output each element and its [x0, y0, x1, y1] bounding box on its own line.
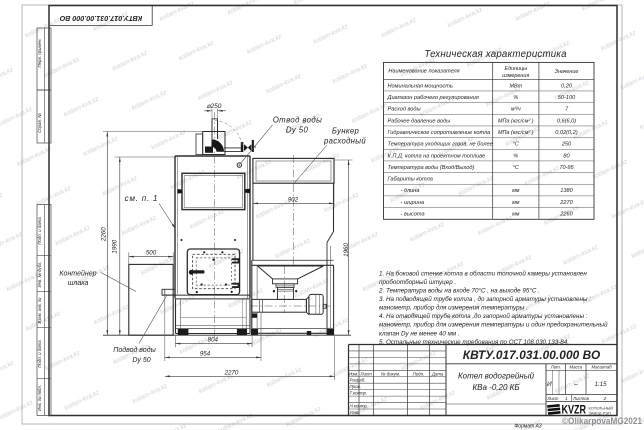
svg-text:0,6(6,0): 0,6(6,0) — [557, 118, 576, 124]
svg-text:МПа (кгс/см² ): МПа (кгс/см² ) — [498, 130, 534, 136]
svg-text:0,20: 0,20 — [561, 83, 573, 89]
svg-text:4. На отводящей трубе котла ,: 4. На отводящей трубе котла ,до запорной… — [379, 313, 588, 320]
svg-text:1380: 1380 — [560, 188, 573, 194]
svg-text:Подвод воды: Подвод воды — [113, 346, 156, 354]
svg-text:902: 902 — [288, 196, 299, 203]
svg-text:Инв. № подл.: Инв. № подл. — [37, 385, 42, 411]
svg-text:70-95: 70-95 — [559, 165, 574, 171]
svg-text:⌀250: ⌀250 — [207, 103, 222, 110]
svg-text:Масса: Масса — [569, 365, 582, 370]
svg-text:№ докум.: № докум. — [381, 371, 400, 376]
svg-text:3. На подводящей трубе котла: 3. На подводящей трубе котла , до запорн… — [379, 296, 591, 303]
svg-text:м³/ч: м³/ч — [511, 107, 521, 113]
svg-text:Листов: Листов — [572, 396, 589, 401]
svg-text:Рабочее давление воды: Рабочее давление воды — [388, 118, 451, 124]
svg-text:1:15: 1:15 — [594, 381, 607, 388]
svg-text:Подп. и дата: Подп. и дата — [37, 340, 42, 368]
svg-text:Отвод воды: Отвод воды — [273, 116, 323, 125]
svg-text:МПа (кгс/см² ): МПа (кгс/см² ) — [498, 118, 534, 124]
svg-text:°С: °С — [513, 142, 519, 148]
svg-text:- высота: - высота — [401, 212, 425, 218]
svg-text:Масштаб: Масштаб — [591, 365, 612, 370]
svg-text:Лист: Лист — [546, 396, 558, 401]
svg-text:2260: 2260 — [559, 212, 573, 218]
svg-text:%: % — [513, 153, 518, 159]
svg-text:Дата: Дата — [431, 371, 444, 376]
svg-text:Справ. №: Справ. № — [37, 113, 42, 133]
svg-text:расходный: расходный — [323, 137, 366, 146]
svg-text:Разраб.: Разраб. — [350, 378, 366, 383]
svg-text:Подп.: Подп. — [413, 371, 425, 376]
svg-text:Температура воды (Вход/Выход): Температура воды (Вход/Выход) — [388, 165, 475, 171]
svg-text:Лист: Лист — [360, 371, 373, 376]
svg-text:–: – — [573, 381, 578, 388]
svg-text:Расход воды: Расход воды — [388, 107, 421, 113]
svg-text:Контейнер: Контейнер — [59, 270, 96, 278]
svg-text:мм: мм — [512, 200, 520, 206]
svg-text:МВт: МВт — [510, 83, 523, 89]
svg-text:манометр, прибор для измерения: манометр, прибор для измерения температу… — [379, 322, 608, 329]
svg-text:мм: мм — [512, 212, 520, 218]
svg-text:°С: °С — [513, 165, 519, 171]
svg-text:500: 500 — [146, 250, 157, 257]
svg-text:804: 804 — [208, 337, 219, 344]
svg-text:2260: 2260 — [100, 227, 107, 242]
svg-text:И: И — [547, 381, 552, 388]
svg-text:Формат А3: Формат А3 — [514, 424, 542, 430]
svg-text:Утв.: Утв. — [350, 410, 360, 415]
svg-text:2270: 2270 — [224, 369, 239, 376]
svg-text:80: 80 — [563, 153, 570, 159]
svg-text:Н.контр.: Н.контр. — [350, 403, 369, 408]
svg-text:2. Температура воды на входе: 2. Температура воды на входе 70°С , на в… — [378, 288, 540, 295]
svg-text:Наименование показателя: Наименование показателя — [388, 69, 459, 75]
svg-text:Dy 50: Dy 50 — [286, 126, 309, 135]
svg-text:1990: 1990 — [112, 239, 119, 253]
svg-text:954: 954 — [200, 350, 211, 357]
svg-text:250: 250 — [561, 142, 572, 148]
svg-text:клапан Dу не менее 40 мм .: клапан Dу не менее 40 мм . — [379, 330, 460, 337]
svg-text:см. п. 1: см. п. 1 — [125, 194, 159, 203]
svg-text:К.П.Д. котла на проектном топл: К.П.Д. котла на проектном топливе — [388, 153, 486, 159]
svg-text:ЗАВОД РЭП: ЗАВОД РЭП — [589, 410, 611, 415]
svg-text:Габариты котла: Габариты котла — [388, 177, 433, 183]
svg-text:Взам. инв. №: Взам. инв. № — [37, 297, 42, 323]
svg-text:КВТУ.017.031.00.000 ВО: КВТУ.017.031.00.000 ВО — [59, 14, 142, 23]
svg-text:шлака: шлака — [68, 280, 89, 287]
svg-text:Номинальная мощность: Номинальная мощность — [388, 83, 453, 89]
svg-text:1. На боковой стенке котла в: 1. На боковой стенке котла в области топ… — [379, 270, 587, 277]
svg-text:Изм.: Изм. — [349, 371, 358, 376]
svg-text:Лит.: Лит. — [550, 365, 561, 370]
svg-text:Dy 50: Dy 50 — [132, 357, 150, 364]
svg-text:Техническая характеристика: Техническая характеристика — [424, 49, 567, 60]
svg-text:Перв. примен.: Перв. примен. — [37, 38, 42, 67]
svg-text:- ширина: - ширина — [401, 200, 425, 206]
svg-text:Единицы: Единицы — [505, 66, 528, 72]
svg-text:пробоотборный штуцер .: пробоотборный штуцер . — [379, 279, 456, 286]
svg-text:50-100: 50-100 — [558, 95, 576, 101]
svg-text:- длина: - длина — [401, 188, 420, 194]
svg-text:Гидравлическое сопротивление к: Гидравлическое сопротивление котла — [388, 130, 491, 136]
svg-text:Т.контр.: Т.контр. — [350, 391, 368, 396]
svg-text:Котел водогрейный: Котел водогрейный — [458, 372, 535, 381]
svg-text:2270: 2270 — [559, 200, 573, 206]
svg-text:Пров.: Пров. — [350, 384, 362, 389]
svg-text:мм: мм — [512, 188, 520, 194]
svg-text:KVZR: KVZR — [562, 405, 587, 417]
svg-text:%: % — [513, 95, 518, 101]
svg-text:Диапазон рабочего регулировани: Диапазон рабочего регулирования — [387, 95, 479, 101]
svg-text:КВТУ.017.031.00.000 ВО: КВТУ.017.031.00.000 ВО — [463, 348, 601, 362]
svg-text:0,02(0,2): 0,02(0,2) — [555, 130, 578, 136]
svg-text:измерения: измерения — [502, 73, 529, 79]
svg-text:1960: 1960 — [343, 243, 350, 257]
svg-text:Бункер: Бункер — [332, 127, 360, 136]
svg-text:Температура уходящих газов, не: Температура уходящих газов, не более — [388, 142, 493, 148]
svg-text:Подп. и дата: Подп. и дата — [37, 217, 42, 245]
svg-text:Значение: Значение — [555, 69, 579, 75]
svg-text:©OlikarpovaMG2021: ©OlikarpovaMG2021 — [562, 416, 642, 426]
svg-text:манометр, прибор для измерения: манометр, прибор для измерения температу… — [379, 305, 528, 312]
svg-text:Инв. № дубл.: Инв. № дубл. — [37, 262, 42, 288]
svg-text:КВа -0,20 КБ: КВа -0,20 КБ — [472, 383, 519, 392]
